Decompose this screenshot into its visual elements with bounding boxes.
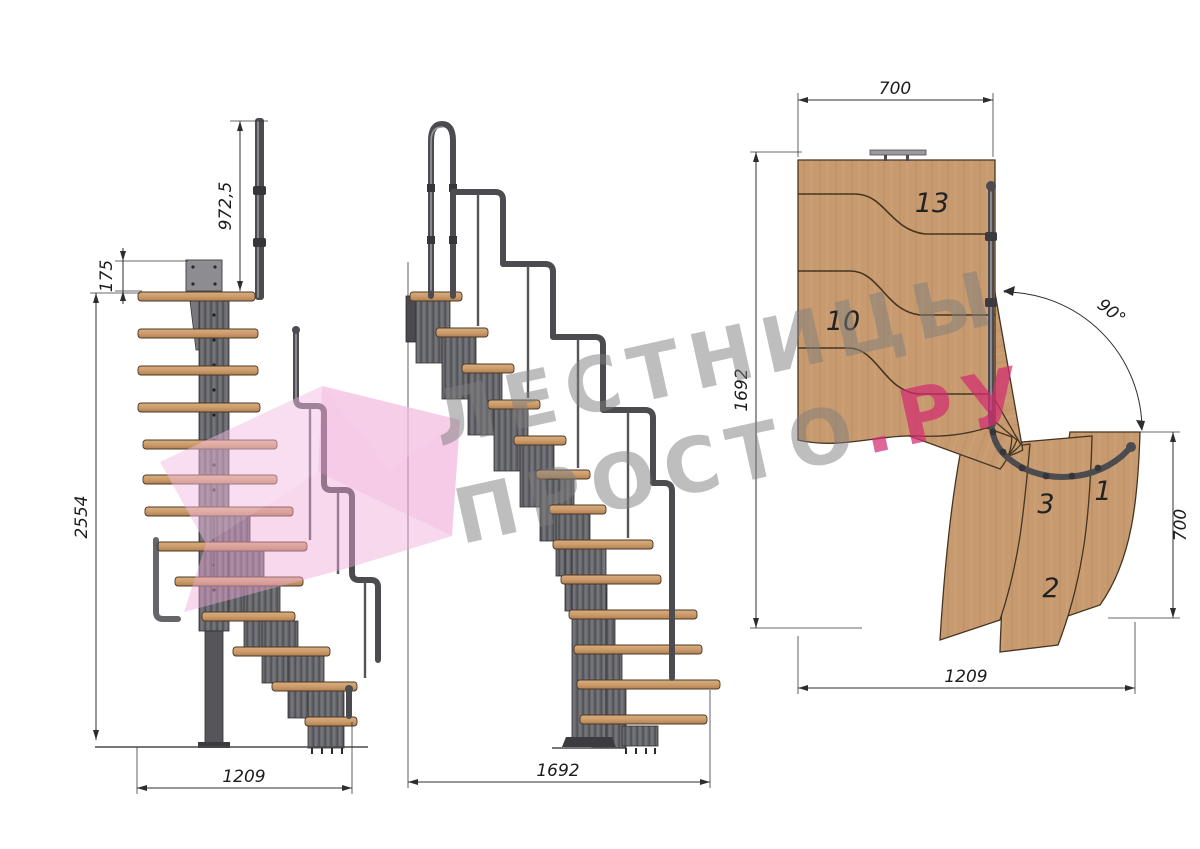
staircase-drawing: 972,5 175 2554 1209 [0, 0, 1200, 849]
dim-label-bottom-length: 1209 [944, 667, 987, 687]
dim-label-footprint-length: 1692 [536, 761, 579, 781]
dim-label-left-length: 1692 [732, 368, 752, 411]
dim-total-height: 2554 [72, 293, 140, 740]
anchor-bolts [312, 748, 342, 754]
dim-top-width: 700 [798, 79, 993, 157]
anchor-bolts [626, 748, 655, 754]
dim-label-footprint-width: 1209 [222, 767, 265, 787]
dim-footprint-length: 1692 [408, 690, 710, 788]
step-number-3: 3 [1037, 489, 1054, 520]
dim-label-right-width: 700 [1171, 509, 1191, 541]
dim-label-top-offset: 175 [97, 260, 117, 292]
handrail-post [253, 118, 266, 300]
step-number-10: 10 [826, 306, 860, 337]
dim-turn-angle: 90° [1003, 286, 1145, 431]
upper-flight-block [798, 160, 995, 443]
dim-bottom-length: 1209 [798, 622, 1135, 694]
dim-label-turn-angle: 90° [1093, 295, 1129, 329]
railing [427, 124, 672, 678]
staircase-drawing-page: 972,5 175 2554 1209 [0, 0, 1200, 849]
plan-view: 90° 13 10 3 1 2 700 1692 [732, 79, 1191, 694]
step-number-13: 13 [915, 188, 949, 219]
dim-label-total-height: 2554 [72, 495, 92, 538]
dim-label-top-width: 700 [879, 79, 911, 99]
step-number-1: 1 [1094, 476, 1111, 507]
step-number-2: 2 [1042, 573, 1059, 604]
dim-label-rail-height: 972,5 [216, 182, 236, 231]
